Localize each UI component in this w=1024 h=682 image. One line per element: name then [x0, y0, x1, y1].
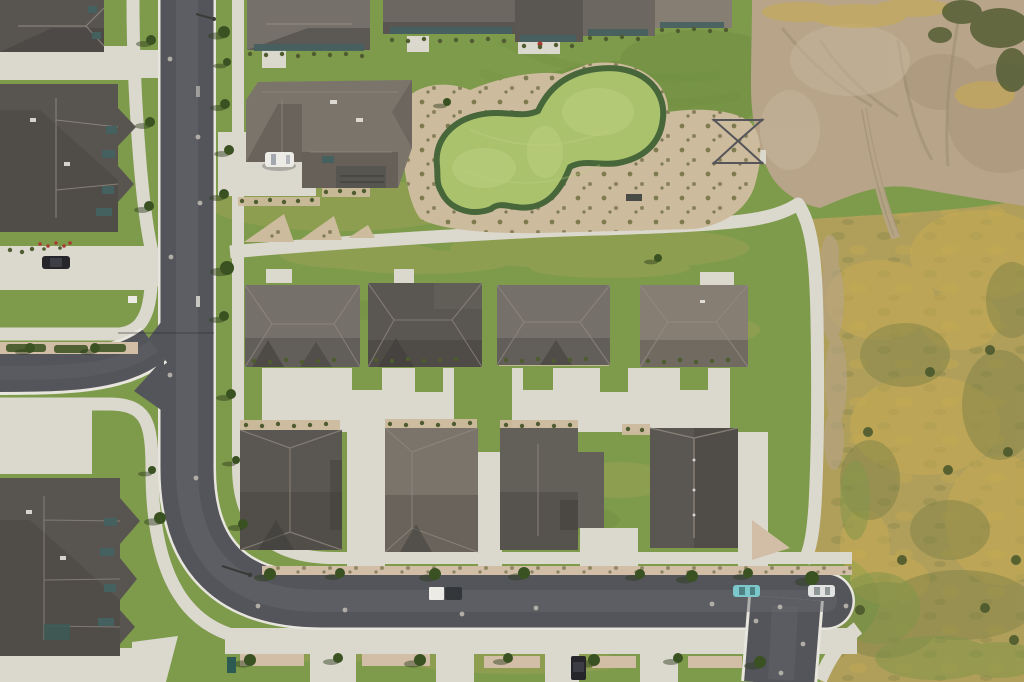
court-lawn-square [680, 368, 708, 390]
field-bushes-item [925, 367, 935, 377]
bed-shrubs-item [296, 199, 300, 203]
bed-shrubs-item [452, 422, 456, 426]
planting-bed [238, 197, 320, 206]
bed-shrubs-item [388, 422, 392, 426]
manholes-item [460, 612, 465, 617]
car-window [814, 587, 820, 595]
bed-shrubs-item [454, 357, 458, 361]
truck-dark [445, 587, 462, 600]
house-wall [88, 6, 97, 13]
car-roof [50, 258, 62, 267]
tree-canopy [805, 571, 819, 585]
roof-wing [434, 283, 482, 309]
roof-vent [60, 556, 66, 560]
manholes-item [778, 605, 783, 610]
lawn-dry-patches-item [330, 250, 510, 274]
foundation-shrubs-item [454, 38, 458, 42]
bed-shrubs-item [20, 250, 24, 254]
foundation-shrubs-item [406, 39, 410, 43]
car-windshield [271, 154, 276, 165]
bed-shrubs-item [568, 423, 572, 427]
streetlight-head [212, 17, 216, 21]
bed-shrubs-item [694, 360, 698, 364]
tree-canopy [414, 654, 426, 666]
bed-shrubs-item [316, 359, 320, 363]
foundation-shrubs-item [486, 37, 490, 41]
flower-bed-item [62, 244, 66, 248]
manholes-item [844, 604, 849, 609]
hedge [96, 344, 126, 352]
bed-shrubs-item [520, 424, 524, 428]
flower-bed-green-item [58, 246, 62, 250]
house-wall [254, 44, 364, 51]
bed-shrubs-item [626, 427, 630, 431]
car-silver [808, 585, 835, 597]
bed-shrubs-item [282, 200, 286, 204]
tree-canopy [144, 201, 154, 211]
manholes-item [801, 642, 806, 647]
foundation-shrubs-item [660, 28, 664, 32]
tree-canopy [503, 653, 513, 663]
tree-canopy [654, 254, 662, 262]
car-window [739, 587, 745, 595]
bed-shrubs-item [240, 199, 244, 203]
foundation-shrubs-item [344, 52, 348, 56]
tree-canopy [223, 58, 231, 66]
bed-shrubs-item [422, 359, 426, 363]
tree-canopy [224, 145, 234, 155]
foundation-shrubs-item [502, 39, 506, 43]
corner-vegetation-item [942, 0, 982, 24]
roof-shade [330, 460, 342, 530]
aerial-photo [0, 0, 1024, 682]
bed-shrubs-item [284, 358, 288, 362]
field-bushes-item [985, 345, 995, 355]
bed-shrubs-item [324, 190, 328, 194]
tree-canopy [518, 567, 530, 579]
trailer-white [429, 587, 444, 600]
driveway [436, 652, 474, 682]
field-bushes-item [855, 605, 865, 615]
road-wear [781, 606, 785, 680]
green-highlights-item [562, 88, 634, 136]
foundation-shrubs-item [360, 54, 364, 58]
court-lawn-square [600, 368, 628, 392]
field-olive-patches-item [860, 323, 950, 387]
foundation-shrubs-item [588, 36, 592, 40]
ridge-vents-item [693, 514, 696, 517]
bed-shrubs-item [276, 422, 280, 426]
house-wall [322, 156, 334, 163]
tree-canopy [335, 568, 345, 578]
field-bushes-item [1003, 447, 1013, 457]
manholes-item [168, 57, 173, 62]
manholes-item [343, 608, 348, 613]
roof-vent [356, 118, 363, 122]
bed-shrubs-item [300, 360, 304, 364]
bed-shrubs-item [710, 359, 714, 363]
manholes-item [256, 604, 261, 609]
house-wall [102, 186, 114, 194]
bed-shrubs-item [468, 421, 472, 425]
manholes-item [198, 201, 203, 206]
manholes-item [194, 476, 199, 481]
foundation-shrubs-item [724, 28, 728, 32]
foundation-shrubs-item [554, 43, 558, 47]
foundation-shrubs-item [708, 29, 712, 33]
foundation-shrubs-item [604, 37, 608, 41]
ridge-vents-item [693, 459, 696, 462]
house-wall [106, 126, 117, 134]
foundation-shrubs-item [570, 44, 574, 48]
foundation-shrubs-item [390, 38, 394, 42]
tree-canopy [25, 343, 35, 353]
bed-shrubs-item [292, 424, 296, 428]
tree-canopy [219, 311, 229, 321]
pergola-posts-item [761, 162, 764, 165]
pergola-posts-item [713, 162, 716, 165]
field-bushes-item [980, 603, 990, 613]
house-wall [390, 27, 512, 34]
flower-bed-item [68, 241, 72, 245]
bed-shrubs-item [390, 359, 394, 363]
patio [700, 272, 734, 286]
manholes-item [779, 671, 784, 676]
tree-canopy [754, 656, 766, 668]
gravel-strip [688, 656, 742, 668]
foundation-shrubs-item [470, 39, 474, 43]
manholes-item [168, 373, 173, 378]
bed-shrubs-item [310, 198, 314, 202]
utility-box [128, 296, 137, 303]
flower-bed-item [54, 241, 58, 245]
bed-shrubs-item [268, 360, 272, 364]
roof-shade [240, 492, 342, 550]
bed-shrubs-item [268, 198, 272, 202]
car-window [825, 587, 830, 595]
bench [626, 194, 642, 201]
tree-canopy [635, 569, 645, 579]
screenshot-stage [0, 0, 1024, 682]
tree-canopy [218, 26, 230, 38]
foundation-shrubs-item [620, 35, 624, 39]
foundation-shrubs-item [328, 53, 332, 57]
field-bushes-item [943, 465, 953, 475]
field-bushes-item [1009, 635, 1019, 645]
eroded-bank-item [824, 410, 844, 470]
foundation-shrubs-item [422, 37, 426, 41]
pergola-posts-item [713, 119, 716, 122]
house-wall [96, 208, 112, 216]
bed-shrubs-item [244, 423, 248, 427]
foundation-shrubs-item [636, 37, 640, 41]
field-bushes-item [897, 555, 907, 565]
parkway-gravel-strip [262, 566, 852, 575]
tree-canopy [148, 466, 156, 474]
tree-canopy [145, 117, 155, 127]
field-olive-patches-item [910, 500, 990, 560]
manholes-item [169, 255, 174, 260]
tree-canopy [226, 389, 236, 399]
roof-notch [560, 500, 578, 530]
foundation-shrubs-item [280, 52, 284, 56]
ridge-vents-item [693, 489, 696, 492]
bed-shrubs-item [254, 200, 258, 204]
dirt-light-area-item [790, 24, 910, 96]
bed-shrubs-item [374, 358, 378, 362]
bed-shrubs-item [338, 189, 342, 193]
tree-canopy [220, 99, 230, 109]
patio [394, 269, 414, 283]
car-window [286, 155, 290, 164]
patio [266, 269, 292, 283]
bed-shrubs-item [404, 423, 408, 427]
roof-wing [578, 452, 604, 528]
flower-bed-item [38, 242, 42, 246]
roof-shade [694, 428, 738, 548]
lawn-dry-patches-item [530, 258, 690, 278]
roof-vent [26, 510, 32, 514]
streetlight-head [248, 573, 252, 577]
tree-canopy [333, 653, 343, 663]
roof-vent [30, 118, 36, 122]
tree-canopy [220, 261, 234, 275]
tree-canopy [686, 570, 698, 582]
foundation-shrubs-item [296, 54, 300, 58]
bed-shrubs-item [678, 358, 682, 362]
bed-shrubs-item [406, 357, 410, 361]
tree-canopy [264, 568, 276, 580]
roof-vent [330, 100, 337, 104]
bed-shrubs-item [552, 359, 556, 363]
bed-shrubs-item [536, 422, 540, 426]
bed-shrubs-item [520, 359, 524, 363]
corner-vegetation-item [928, 27, 952, 43]
house-wall [100, 548, 114, 556]
bed-shrubs-item [646, 359, 650, 363]
bin-teal [227, 657, 236, 673]
flower-bed-green-item [42, 247, 46, 251]
tree-canopy [90, 343, 100, 353]
tree-canopy [219, 189, 229, 199]
bed-shrubs-item [568, 358, 572, 362]
car-roof [573, 662, 584, 672]
entry-patio [44, 624, 70, 640]
rear-deck [336, 166, 386, 188]
bed-shrubs-item [436, 423, 440, 427]
manholes-item [754, 619, 759, 624]
walkway-court [0, 410, 92, 474]
bed-shrubs-item [726, 358, 730, 362]
tree-canopy [232, 456, 240, 464]
tree-canopy [244, 654, 256, 666]
eroded-bank-item [821, 235, 839, 275]
house-wall [104, 584, 116, 592]
bed-shrubs-item [8, 248, 12, 252]
bed-shrubs-item [352, 191, 356, 195]
bed-shrubs-item [438, 358, 442, 362]
green-highlights-item [527, 126, 563, 178]
house-wall [520, 35, 576, 42]
house-wall [660, 22, 724, 28]
bed-shrubs-item [504, 358, 508, 362]
foundation-shrubs-item [538, 45, 542, 49]
foundation-shrubs-item [438, 39, 442, 43]
house-wall [102, 150, 115, 158]
tree-canopy [743, 568, 753, 578]
car-window [750, 587, 755, 595]
house-wall [104, 518, 117, 526]
court-lawn-square [352, 368, 382, 390]
bed-shrubs-item [362, 189, 366, 193]
court-lawn-square [415, 368, 443, 392]
manholes-item [196, 135, 201, 140]
bed-shrubs-item [584, 357, 588, 361]
driveway [310, 652, 356, 682]
tree-canopy [673, 653, 683, 663]
manholes-item [534, 606, 539, 611]
tree-canopy [429, 568, 441, 580]
bed-shrubs-item [260, 424, 264, 428]
tree-canopy [154, 512, 166, 524]
bed-shrubs-item [30, 247, 34, 251]
tree-canopy [588, 654, 600, 666]
lane-dash [196, 86, 200, 97]
court-lawn-square [523, 368, 553, 390]
bed-shrubs-item [420, 421, 424, 425]
house-wall [98, 618, 114, 626]
bed-shrubs-item [252, 359, 256, 363]
house-wall [588, 29, 648, 36]
tree-canopy [238, 519, 248, 529]
field-bushes-item [1011, 555, 1021, 565]
house-wall [92, 32, 101, 39]
bed-shrubs-item [552, 424, 556, 428]
foundation-shrubs-item [264, 53, 268, 57]
dirt-light-area-item [760, 90, 820, 170]
driveway [640, 652, 678, 682]
bed-shrubs-item [662, 360, 666, 364]
tree-canopy [146, 35, 156, 45]
foundation-shrubs-item [676, 29, 680, 33]
foundation-shrubs-item [522, 44, 526, 48]
bed-shrubs-item [536, 357, 540, 361]
bed-shrubs-item [324, 422, 328, 426]
pergola-posts-item [761, 119, 764, 122]
bed-shrubs-item [640, 428, 644, 432]
bed-shrubs-item [504, 423, 508, 427]
bed-shrubs-item [308, 423, 312, 427]
roof-vent [700, 300, 705, 303]
foundation-shrubs-item [248, 52, 252, 56]
roof-shade [385, 495, 478, 552]
bed-shrubs-item [332, 358, 336, 362]
lane-dash [196, 296, 200, 307]
foundation-shrubs-item [692, 27, 696, 31]
roof-vent [64, 162, 70, 166]
manholes-item [710, 602, 715, 607]
tree-canopy [443, 98, 451, 106]
field-bushes-item [863, 427, 873, 437]
flower-bed-item [46, 244, 50, 248]
car-teal [733, 585, 760, 597]
field-green-patches-item [840, 460, 870, 540]
foundation-shrubs-item [312, 52, 316, 56]
